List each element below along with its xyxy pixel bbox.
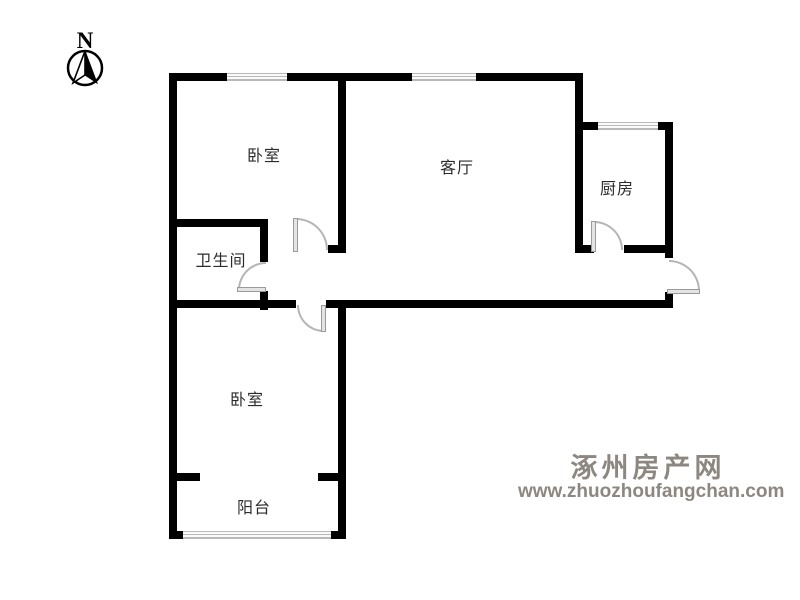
door-arc-bedroom-bottom (297, 305, 324, 332)
wall-bathroom-right-upper (260, 219, 268, 262)
wall-kitchen-bottom-right (624, 245, 673, 253)
window-bedroom-top (227, 73, 287, 81)
wall-hall-top-stub (328, 245, 346, 253)
door-arc-kitchen (594, 221, 623, 250)
room-label-kitchen: 厨房 (600, 175, 634, 199)
wall-bedroom2-right (338, 300, 346, 538)
window-kitchen-top (598, 122, 658, 130)
door-leaf-bathroom (237, 287, 266, 292)
wall-balcony-divider-left (169, 473, 200, 481)
room-label-bathroom: 卫生间 (195, 247, 246, 271)
wall-hall-bottom-right (326, 300, 672, 308)
room-label-balcony: 阳台 (237, 494, 271, 518)
window-balcony-bottom (183, 531, 331, 539)
door-leaf-bedroom-top (293, 218, 298, 252)
wall-bedroom-living-divider (338, 73, 346, 253)
room-label-bedroom-top: 卧室 (247, 142, 281, 166)
watermark-site-name: 涿州房产网 (518, 455, 778, 481)
wall-balcony-divider-right (318, 473, 346, 481)
wall-hall-bottom-left (169, 300, 296, 308)
door-leaf-bedroom-bottom (321, 305, 326, 332)
wall-balcony-bottom-right (331, 531, 346, 539)
north-arrow-icon (65, 48, 105, 90)
door-arc-bedroom-top (296, 218, 328, 250)
room-label-bedroom-bottom: 卧室 (230, 386, 264, 410)
watermark: 涿州房产网 www.zhuozhoufangchan.com (518, 455, 778, 502)
watermark-site-url: www.zhuozhoufangchan.com (518, 481, 778, 502)
wall-kitchen-right (665, 122, 673, 258)
door-leaf-entry (667, 289, 700, 294)
wall-balcony-bottom-left (169, 531, 183, 539)
window-living-top (412, 73, 476, 81)
door-leaf-kitchen (591, 221, 596, 252)
floorplan-canvas: { "compass": { "label": "N" }, "rooms": … (0, 0, 800, 600)
door-arc-entry (669, 260, 700, 291)
wall-bathroom-top (169, 219, 268, 227)
room-label-living: 客厅 (440, 154, 474, 178)
wall-living-right (575, 73, 583, 253)
